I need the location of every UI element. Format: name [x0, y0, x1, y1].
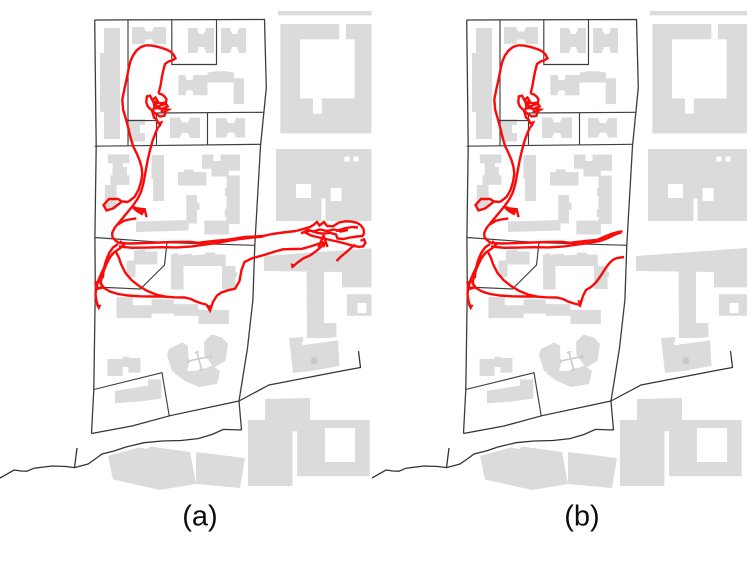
svg-text:(b): (b)	[564, 501, 599, 533]
svg-text:(a): (a)	[182, 501, 217, 533]
